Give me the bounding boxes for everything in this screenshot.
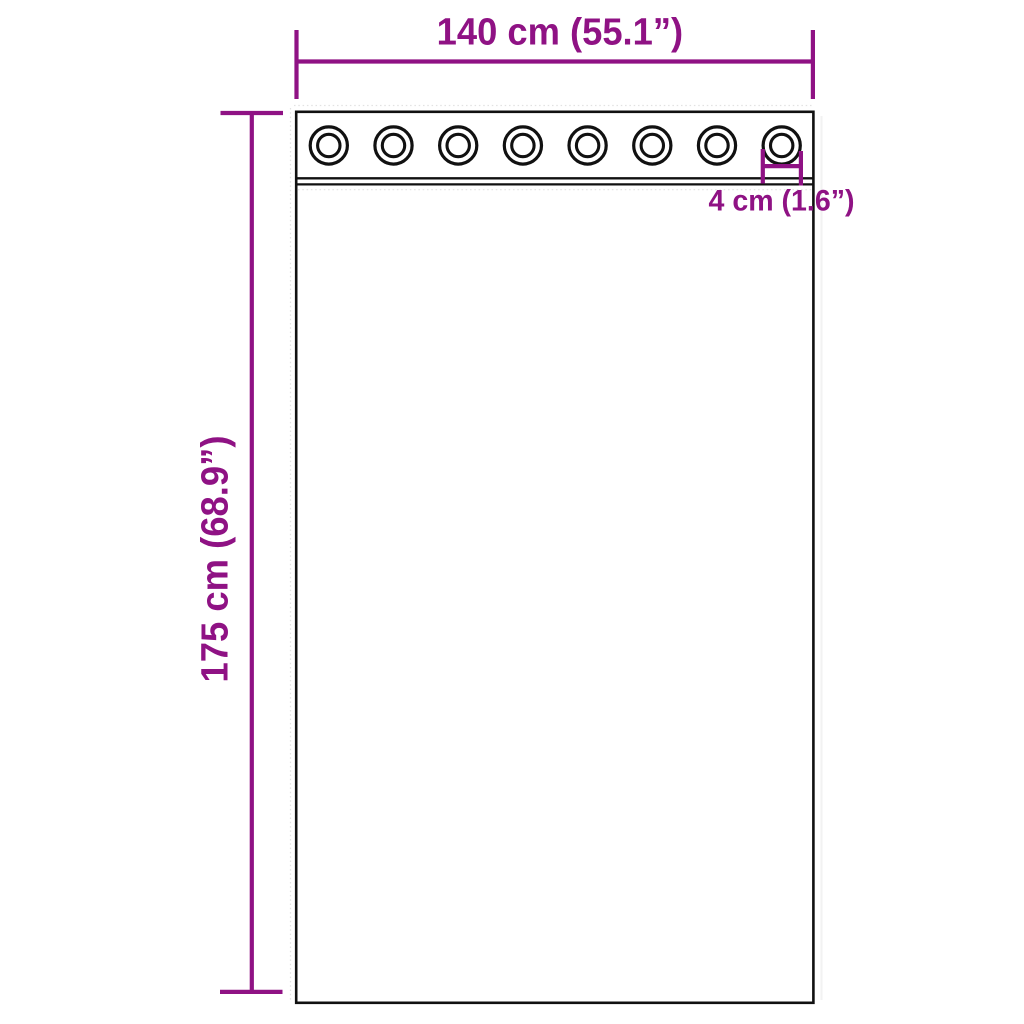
svg-text:175 cm (68.9”): 175 cm (68.9”) [194,436,236,683]
svg-text:4 cm (1.6”): 4 cm (1.6”) [709,184,855,217]
svg-text:140 cm (55.1”): 140 cm (55.1”) [437,11,684,53]
